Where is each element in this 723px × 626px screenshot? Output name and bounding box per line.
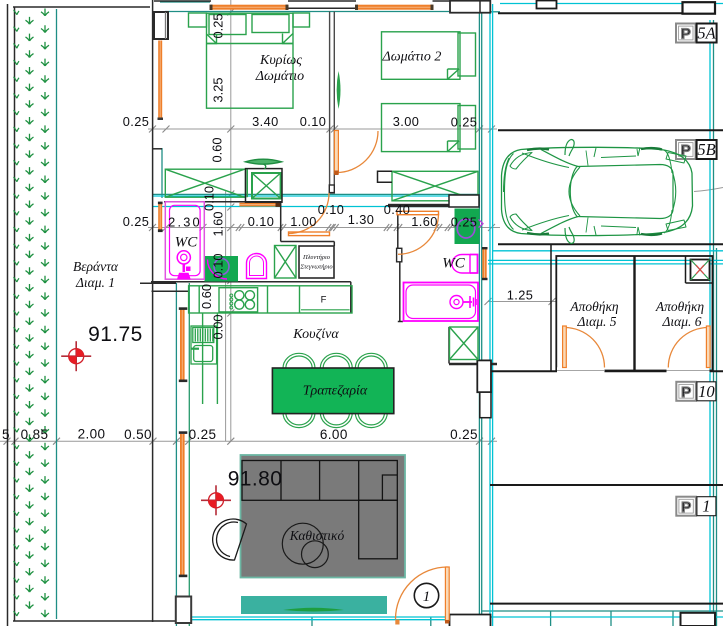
svg-text:91.80: 91.80 <box>228 467 283 490</box>
svg-text:3.40: 3.40 <box>252 114 279 129</box>
svg-text:0.25: 0.25 <box>189 427 217 442</box>
svg-text:1.30: 1.30 <box>348 212 375 227</box>
svg-text:1: 1 <box>702 497 710 516</box>
svg-text:Τραπεζαρία: Τραπεζαρία <box>303 383 368 398</box>
svg-text:Στεγνωτήριο: Στεγνωτήριο <box>299 264 333 271</box>
svg-text:WC: WC <box>442 256 465 272</box>
svg-text:0.25: 0.25 <box>451 114 478 129</box>
svg-text:0.25: 0.25 <box>211 14 226 39</box>
svg-text:3.25: 3.25 <box>211 78 226 103</box>
svg-text:3.00: 3.00 <box>393 114 420 129</box>
svg-text:F: F <box>321 295 327 306</box>
svg-text:0.40: 0.40 <box>384 202 411 217</box>
svg-text:2.00: 2.00 <box>78 427 106 442</box>
svg-text:0.10: 0.10 <box>300 114 327 129</box>
svg-text:Αποθήκη: Αποθήκη <box>655 299 705 314</box>
svg-text:2.30: 2.30 <box>168 214 202 229</box>
svg-text:0.85: 0.85 <box>21 427 49 442</box>
svg-text:5: 5 <box>2 427 10 442</box>
svg-text:0.25: 0.25 <box>450 427 478 442</box>
svg-text:0.25: 0.25 <box>451 214 478 229</box>
svg-text:Βεράντα: Βεράντα <box>73 259 119 274</box>
svg-text:0.10: 0.10 <box>211 254 226 279</box>
svg-text:P: P <box>681 384 691 401</box>
svg-text:WC: WC <box>175 234 198 250</box>
svg-text:Κουζίνα: Κουζίνα <box>292 327 339 342</box>
svg-text:0.25: 0.25 <box>123 214 150 229</box>
svg-text:91.75: 91.75 <box>88 323 143 346</box>
svg-text:0.00: 0.00 <box>211 315 226 340</box>
svg-text:Καθιστικό: Καθιστικό <box>289 528 345 543</box>
svg-text:0.10: 0.10 <box>248 214 275 229</box>
svg-text:Διαμ. 1: Διαμ. 1 <box>75 275 115 290</box>
svg-text:1.60: 1.60 <box>211 212 226 237</box>
svg-text:0.50: 0.50 <box>124 427 152 442</box>
svg-text:Δωμάτιο: Δωμάτιο <box>255 69 304 84</box>
svg-text:Πλυντήριο: Πλυντήριο <box>302 254 331 261</box>
svg-text:0.60: 0.60 <box>199 284 214 309</box>
svg-text:0.25: 0.25 <box>123 114 150 129</box>
svg-text:Κυρίως: Κυρίως <box>259 53 302 68</box>
svg-text:1.00: 1.00 <box>290 214 317 229</box>
svg-text:5A: 5A <box>697 24 716 43</box>
svg-text:0.60: 0.60 <box>210 138 225 163</box>
svg-text:P: P <box>681 499 691 516</box>
svg-text:Δωμάτιο 2: Δωμάτιο 2 <box>382 50 442 65</box>
svg-text:Αποθήκη: Αποθήκη <box>569 299 619 314</box>
svg-text:P: P <box>681 26 691 43</box>
svg-text:6.00: 6.00 <box>320 427 348 442</box>
svg-text:0.10: 0.10 <box>202 186 217 211</box>
svg-text:0.10: 0.10 <box>318 202 345 217</box>
svg-text:5B: 5B <box>697 140 715 159</box>
svg-text:Διαμ. 5: Διαμ. 5 <box>576 314 616 329</box>
svg-text:1.25: 1.25 <box>507 288 534 303</box>
svg-text:1.60: 1.60 <box>411 214 438 229</box>
svg-text:1: 1 <box>423 589 431 605</box>
svg-text:Διαμ. 6: Διαμ. 6 <box>661 314 701 329</box>
svg-text:10: 10 <box>698 382 715 401</box>
